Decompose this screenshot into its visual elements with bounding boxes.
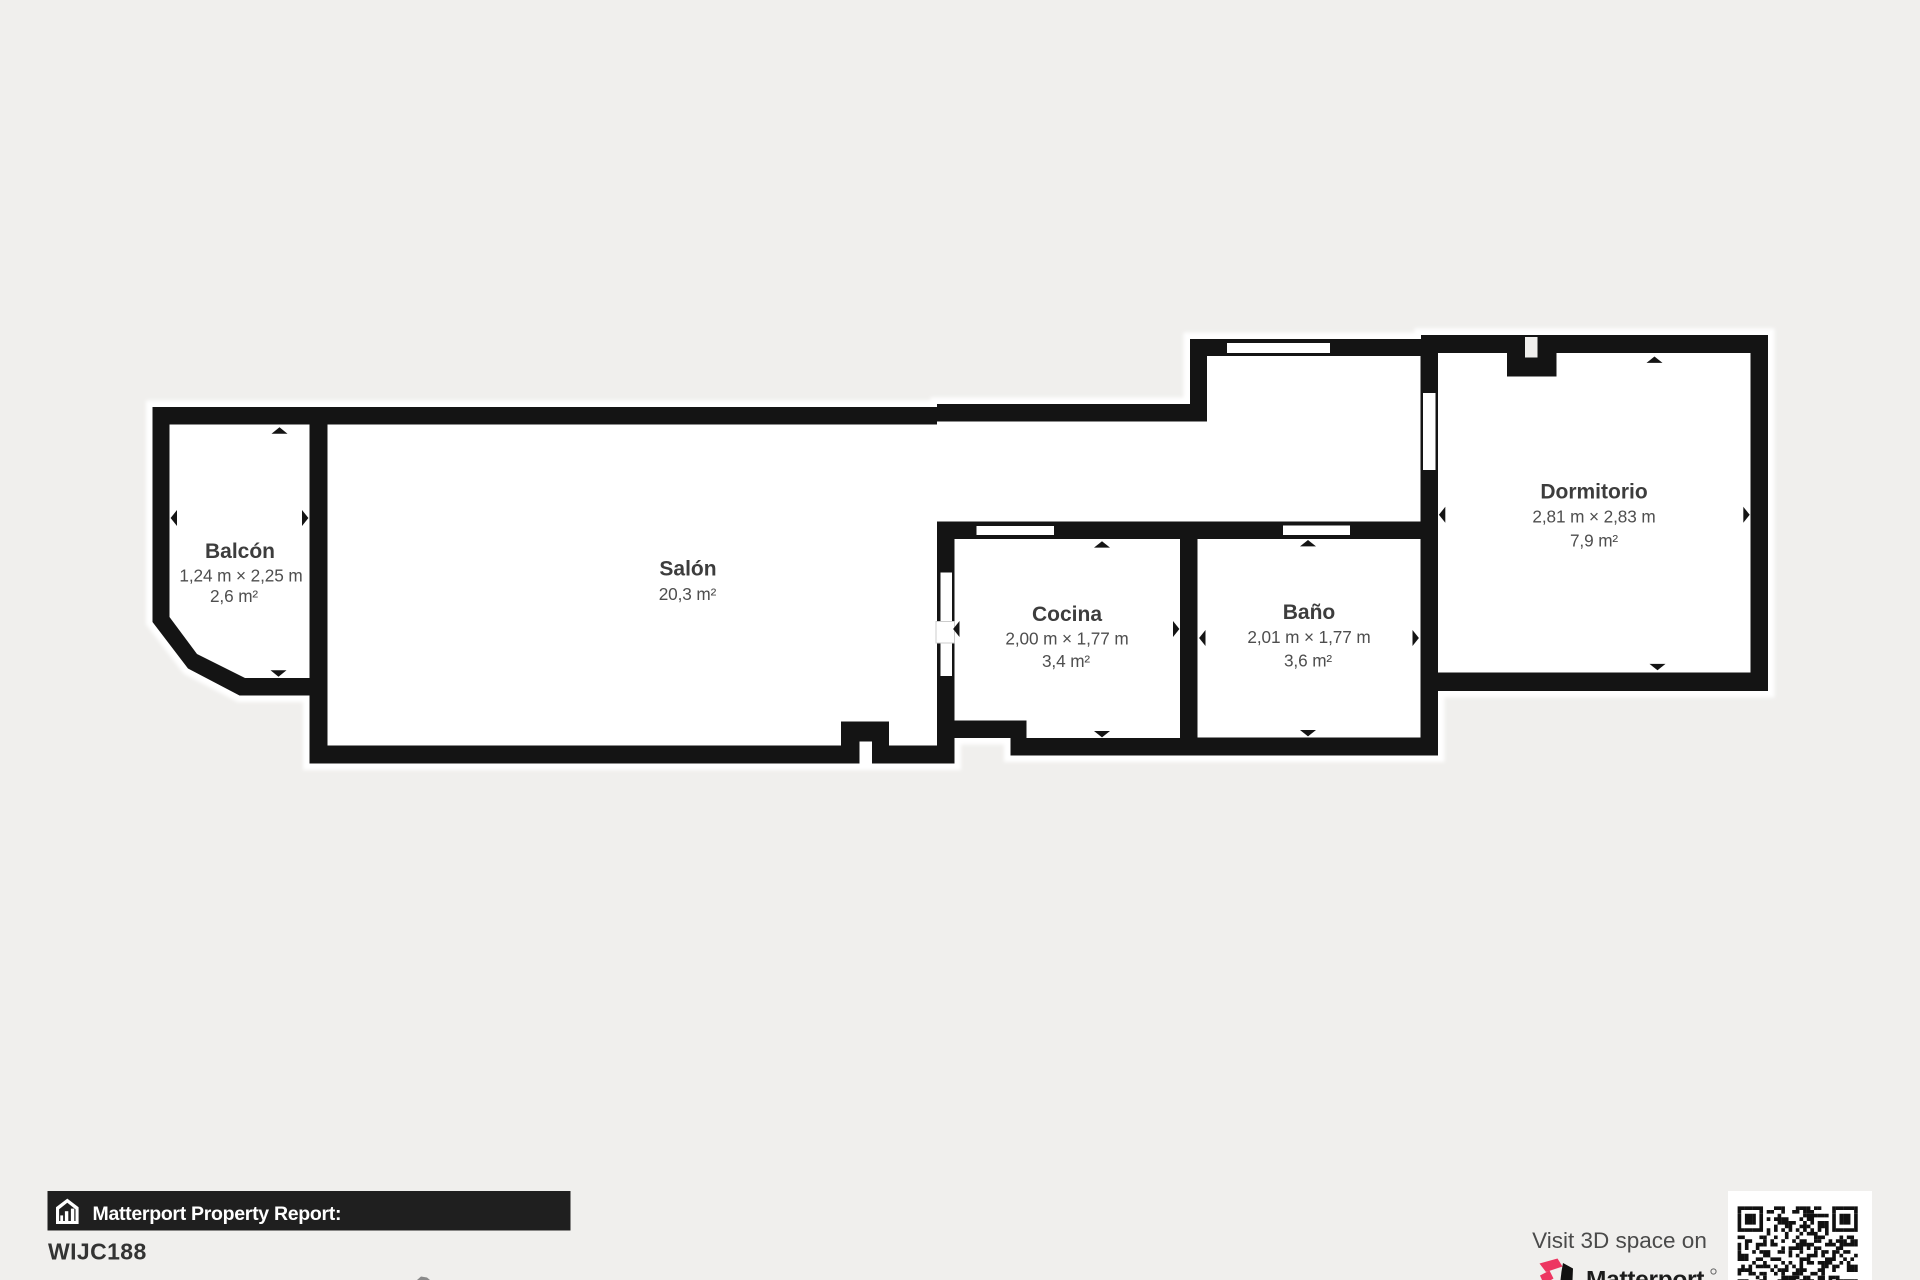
svg-text:2,01 m × 1,77 m: 2,01 m × 1,77 m (1247, 627, 1370, 647)
svg-text:2,81 m × 2,83 m: 2,81 m × 2,83 m (1532, 507, 1655, 527)
svg-text:WIJC188: WIJC188 (48, 1239, 147, 1265)
svg-text:2,6 m²: 2,6 m² (210, 586, 258, 606)
svg-text:20,3 m²: 20,3 m² (659, 584, 717, 604)
svg-text:7,9 m²: 7,9 m² (1570, 531, 1618, 551)
svg-text:Dormitorio: Dormitorio (1540, 481, 1647, 504)
svg-text:Matterport Property Report:: Matterport Property Report: (93, 1203, 342, 1225)
svg-text:3,6 m²: 3,6 m² (1284, 651, 1332, 671)
svg-text:Cocina: Cocina (1032, 603, 1102, 626)
svg-text:Matterport: Matterport (1586, 1267, 1704, 1280)
svg-text:Visit 3D space on: Visit 3D space on (1532, 1228, 1707, 1253)
svg-text:Baño: Baño (1283, 601, 1336, 624)
svg-text:3,4 m²: 3,4 m² (1042, 651, 1090, 671)
svg-text:1,24 m × 2,25 m: 1,24 m × 2,25 m (179, 566, 302, 586)
svg-text:2,00 m × 1,77 m: 2,00 m × 1,77 m (1005, 629, 1128, 649)
svg-text:Salón: Salón (659, 558, 716, 581)
svg-text:Balcón: Balcón (205, 540, 275, 563)
